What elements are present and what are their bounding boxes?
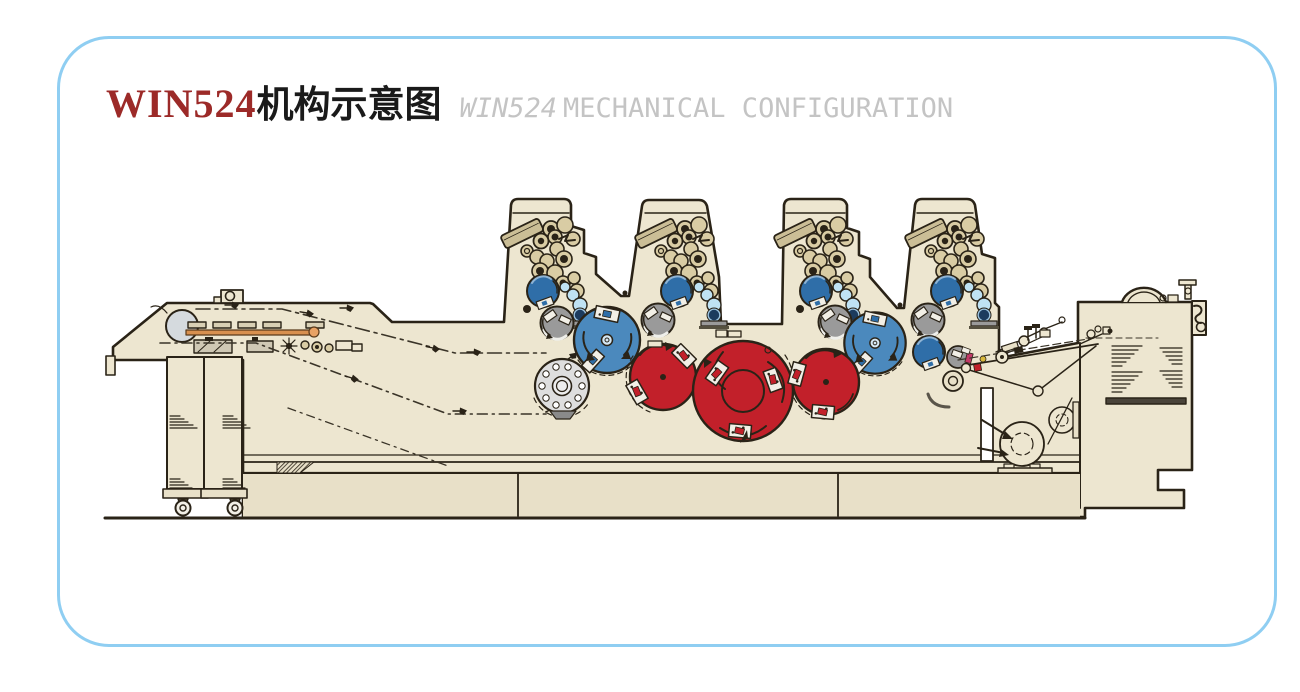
notch-bolt-1 xyxy=(623,291,628,296)
paper-pile-carts xyxy=(163,357,250,516)
page: WIN524机构示意图WIN524MECHANICAL CONFIGURATIO… xyxy=(0,0,1300,692)
feeder-bracket xyxy=(106,356,115,375)
pile-cart-1 xyxy=(167,357,204,489)
transfer-cylinder-4 xyxy=(912,304,945,337)
delivery-roller-beige xyxy=(943,371,963,391)
transfer-cylinder-1 xyxy=(541,307,574,340)
blanket-cylinder-left xyxy=(574,306,640,376)
blower-pump xyxy=(1000,422,1044,466)
feeder-bar xyxy=(186,330,312,335)
caster-wheel-1 xyxy=(176,499,191,516)
delivery-fan xyxy=(1049,407,1075,433)
base-panel xyxy=(243,474,1080,517)
pile-cart-2 xyxy=(204,357,242,489)
transfer-cylinder-2 xyxy=(642,304,675,337)
notch-bolt-2 xyxy=(898,303,903,308)
sun-burst-icon xyxy=(281,338,297,354)
machine-diagram xyxy=(0,0,1300,692)
delivery-pile-board xyxy=(1106,398,1186,404)
feeder-bar-knob xyxy=(309,327,319,337)
caster-wheel-2 xyxy=(228,499,243,516)
